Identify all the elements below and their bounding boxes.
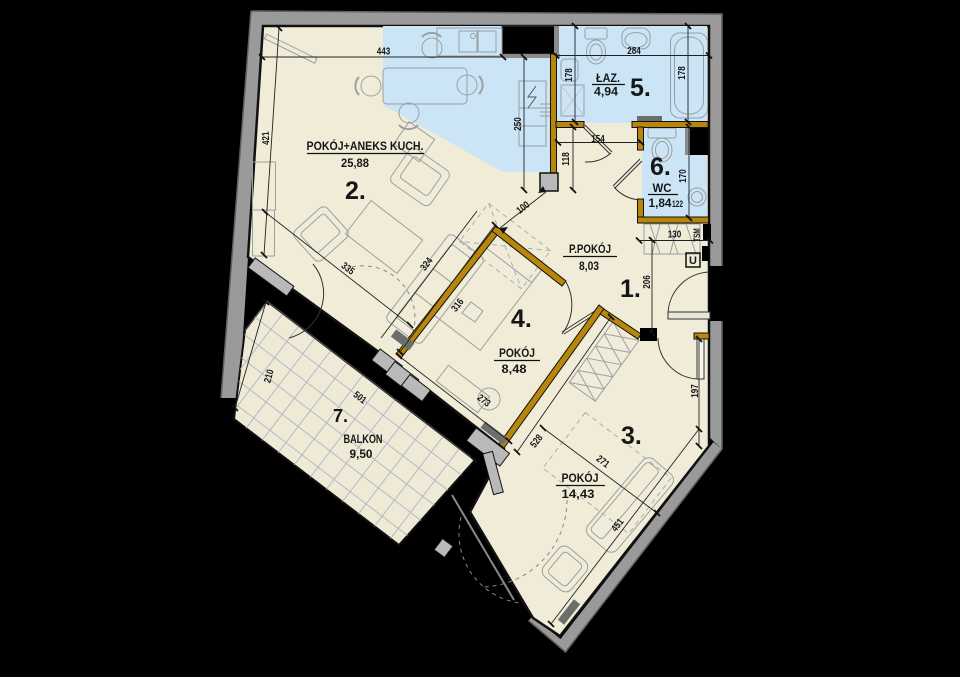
svg-text:6.: 6. [650, 153, 671, 181]
svg-text:ŁAZ.: ŁAZ. [596, 71, 620, 85]
svg-text:P.POKÓJ: P.POKÓJ [569, 241, 611, 256]
svg-text:206: 206 [642, 275, 653, 289]
svg-text:284: 284 [627, 46, 641, 57]
svg-text:POKÓJ+ANEKS KUCH.: POKÓJ+ANEKS KUCH. [307, 138, 424, 153]
svg-text:1,84: 1,84 [649, 196, 672, 210]
svg-text:5.: 5. [630, 74, 651, 102]
svg-text:BALKON: BALKON [344, 432, 383, 446]
svg-text:421: 421 [261, 131, 273, 146]
svg-text:154: 154 [591, 134, 605, 145]
svg-text:U: U [689, 255, 697, 267]
svg-text:122: 122 [672, 199, 683, 209]
svg-text:TSM: TSM [692, 228, 702, 242]
svg-text:178: 178 [677, 66, 688, 80]
svg-text:7.: 7. [333, 406, 348, 426]
svg-text:4.: 4. [511, 305, 532, 333]
svg-text:8,03: 8,03 [579, 259, 599, 273]
svg-text:9,50: 9,50 [350, 447, 373, 461]
svg-text:250: 250 [513, 117, 524, 131]
svg-text:1.: 1. [620, 275, 641, 303]
svg-text:POKÓJ: POKÓJ [562, 470, 599, 485]
svg-text:4,94: 4,94 [594, 85, 618, 99]
svg-text:8,48: 8,48 [502, 362, 527, 376]
svg-text:14,43: 14,43 [562, 487, 595, 501]
svg-text:POKÓJ: POKÓJ [499, 345, 535, 360]
svg-text:3.: 3. [621, 422, 642, 450]
svg-text:25,88: 25,88 [341, 156, 369, 170]
svg-text:443: 443 [377, 47, 391, 58]
svg-text:197: 197 [690, 384, 701, 398]
svg-text:118: 118 [561, 152, 572, 166]
svg-text:170: 170 [678, 169, 689, 183]
svg-text:130: 130 [668, 230, 682, 241]
svg-text:2.: 2. [345, 177, 366, 205]
svg-text:WC: WC [653, 181, 672, 195]
svg-text:178: 178 [564, 68, 575, 82]
